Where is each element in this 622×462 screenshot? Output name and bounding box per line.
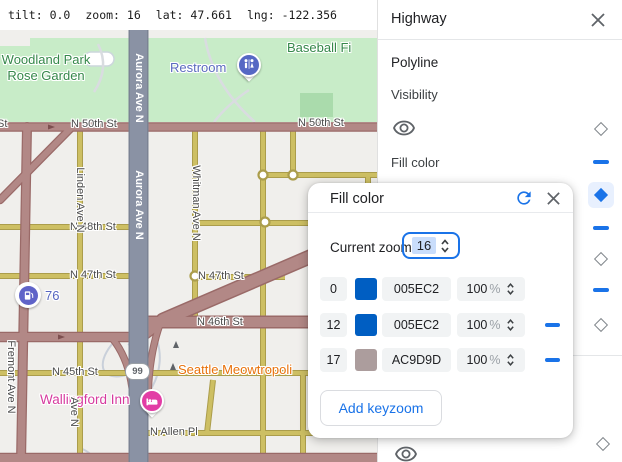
street-label-47th-west: N 47th St bbox=[70, 269, 116, 281]
hex-color-field[interactable]: AC9D9D bbox=[382, 348, 451, 372]
park-label: Woodland Park Rose Garden bbox=[0, 52, 92, 84]
inn-pin bbox=[140, 389, 164, 421]
keyzoom-level-field[interactable]: 12 bbox=[320, 313, 347, 337]
keyzoom-row-1: 12 005EC2 100% bbox=[320, 313, 525, 337]
fill-color-label: Fill color bbox=[391, 155, 439, 170]
visibility-eye-icon-2[interactable] bbox=[394, 442, 418, 462]
street-label-aurora-2: Aurora Ave N bbox=[133, 170, 145, 239]
remove-keyzoom-button[interactable] bbox=[545, 323, 560, 327]
street-label-50th-east: N 50th St bbox=[298, 117, 344, 129]
current-zoom-label: Current zoom bbox=[330, 240, 412, 255]
visibility-label: Visibility bbox=[391, 87, 438, 102]
baseball-field-label: Baseball Fi bbox=[287, 40, 351, 56]
street-label-linden-short: Ave N bbox=[68, 397, 80, 427]
tilt-stat: tilt: 0.0 bbox=[8, 8, 70, 22]
reset-icon[interactable] bbox=[514, 188, 534, 208]
color-swatch[interactable] bbox=[355, 349, 377, 371]
street-label-45th: N 45th St bbox=[52, 366, 98, 378]
street-label-linden: Linden Ave N bbox=[74, 167, 86, 232]
keyframe-diamond-2[interactable] bbox=[594, 252, 608, 266]
restroom-icon bbox=[237, 53, 261, 77]
cat-cafe-label: Seattle Meowtropoli bbox=[178, 362, 292, 377]
restroom-label: Restroom bbox=[170, 60, 226, 75]
dialog-title: Fill color bbox=[330, 191, 384, 207]
baseball-field-area bbox=[300, 93, 333, 117]
street-label-47th-east: N 47th St bbox=[198, 270, 244, 282]
opacity-value: 100 bbox=[467, 318, 488, 332]
keyzoom-row-0: 0 005EC2 100% bbox=[320, 277, 525, 301]
route-99-number: 99 bbox=[132, 366, 143, 377]
stepper-chevrons-icon[interactable] bbox=[440, 237, 450, 255]
street-label-46th: N 46th St bbox=[197, 316, 243, 328]
street-label-fremont: Fremont Ave N bbox=[5, 340, 17, 413]
keyframe-diamond-3[interactable] bbox=[594, 318, 608, 332]
gas-pump-icon bbox=[15, 282, 41, 308]
street-label-50th: N 50th St bbox=[71, 118, 117, 130]
stepper-chevrons-icon[interactable] bbox=[506, 317, 515, 333]
current-zoom-value: 16 bbox=[412, 237, 436, 254]
street-label-50th-partial: St bbox=[0, 118, 7, 130]
color-swatch[interactable] bbox=[355, 278, 377, 300]
map-style-editor: tilt: 0.0 zoom: 16 lat: 47.661 lng: -122… bbox=[0, 0, 622, 462]
panel-title: Highway bbox=[391, 11, 447, 27]
gas-station-label: 76 bbox=[45, 288, 59, 303]
remove-keyzoom-button[interactable] bbox=[545, 358, 560, 362]
keyzoom-dash-3[interactable] bbox=[593, 288, 609, 292]
add-keyzoom-button[interactable]: Add keyzoom bbox=[320, 390, 442, 426]
color-swatch[interactable] bbox=[355, 314, 377, 336]
map-status-bar: tilt: 0.0 zoom: 16 lat: 47.661 lng: -122… bbox=[0, 0, 377, 30]
keyzoom-level-field[interactable]: 17 bbox=[320, 348, 347, 372]
panel-close-icon[interactable] bbox=[590, 12, 606, 28]
fill-color-dialog: Fill color Current zoom 16 0 005EC2 100% bbox=[308, 183, 573, 438]
opacity-stepper[interactable]: 100% bbox=[457, 313, 525, 337]
keyzoom-dash-2[interactable] bbox=[593, 226, 609, 230]
route-99-shield: 99 bbox=[125, 363, 150, 380]
panel-divider bbox=[378, 39, 622, 40]
lng-stat: lng: -122.356 bbox=[247, 8, 337, 22]
percent-sign: % bbox=[489, 282, 500, 296]
street-label-aurora: Aurora Ave N bbox=[133, 53, 145, 122]
hex-color-field[interactable]: 005EC2 bbox=[382, 277, 451, 301]
current-zoom-stepper[interactable]: 16 bbox=[402, 232, 460, 259]
opacity-stepper[interactable]: 100% bbox=[457, 348, 525, 372]
opacity-value: 100 bbox=[467, 282, 488, 296]
lat-stat: lat: 47.661 bbox=[156, 8, 232, 22]
keyzoom-level-field[interactable]: 0 bbox=[320, 277, 347, 301]
inn-label: Wallingford Inn bbox=[40, 392, 130, 407]
fill-color-keyzoom-dash[interactable] bbox=[593, 160, 609, 164]
opacity-stepper[interactable]: 100% bbox=[457, 277, 525, 301]
visibility-keyframe-diamond[interactable] bbox=[594, 122, 608, 136]
stepper-chevrons-icon[interactable] bbox=[506, 281, 515, 297]
hex-color-field[interactable]: 005EC2 bbox=[382, 313, 451, 337]
visibility-eye-icon[interactable] bbox=[392, 116, 416, 140]
selected-keyframe-diamond[interactable] bbox=[588, 182, 614, 208]
dialog-close-icon[interactable] bbox=[546, 191, 561, 206]
zoom-stat: zoom: 16 bbox=[85, 8, 140, 22]
street-label-allen-pl: N Allen Pl bbox=[150, 426, 198, 438]
polyline-section-label: Polyline bbox=[391, 55, 438, 70]
percent-sign: % bbox=[489, 318, 500, 332]
stepper-chevrons-icon[interactable] bbox=[506, 352, 515, 368]
keyframe-diamond-4[interactable] bbox=[596, 437, 610, 451]
street-label-whitman: Whitman Ave N bbox=[190, 165, 202, 241]
gas-station-pin bbox=[15, 282, 41, 308]
percent-sign: % bbox=[489, 353, 500, 367]
keyzoom-row-2: 17 AC9D9D 100% bbox=[320, 348, 525, 372]
restroom-pin bbox=[237, 53, 261, 85]
dialog-header: Fill color bbox=[308, 183, 573, 213]
bed-icon bbox=[140, 389, 164, 413]
opacity-value: 100 bbox=[467, 353, 488, 367]
